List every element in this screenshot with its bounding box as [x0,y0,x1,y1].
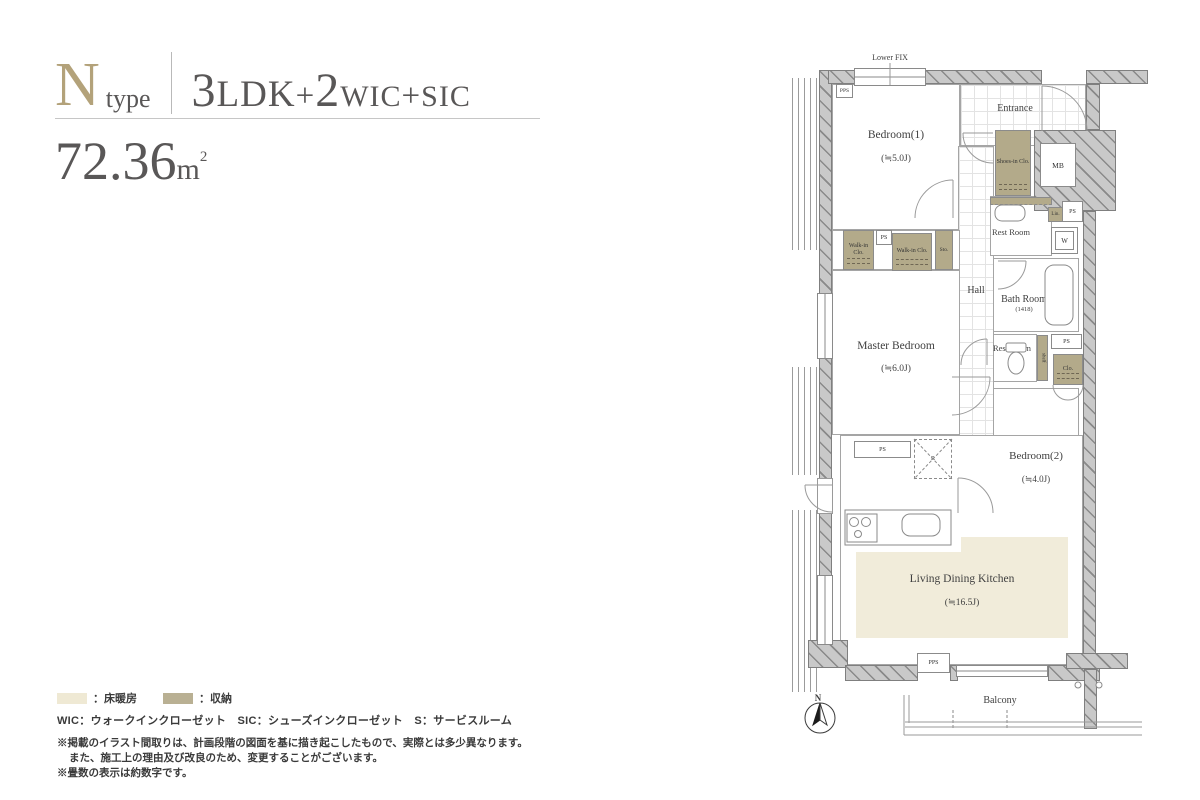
storage-label: ：収納 [199,690,232,706]
balcony-drain-1 [1075,682,1081,688]
shoes-in-closet: Shoes-in Clo. [995,130,1031,196]
window-lower-fix [854,68,926,86]
compass-needle-dark [813,703,820,725]
bedroom2-label: Bedroom(2) [993,450,1079,462]
ps-wic-label: PS [881,235,888,241]
pps-box-bottom: PPS [917,653,950,673]
hall-label: Hall [958,285,994,296]
wall-balcony-stub [1066,653,1128,669]
shelf-label: shelf [1040,353,1046,363]
ldk-size: (≒16.5J) [856,597,1068,608]
storage-box: Sto. [935,230,953,270]
header-divider [171,52,172,114]
ps-box-entrance: PS [1062,201,1083,222]
bathroom-label: Bath Room [993,294,1055,305]
area-unit-sup: 2 [200,149,208,165]
ps-kitchen-label: PS [879,447,886,453]
wall-top-c [1086,70,1148,84]
floor-heating-swatch [57,693,87,704]
wall-balcony-divider [1084,669,1097,729]
layout-ldk: LDK [217,74,296,115]
plan-type-header: N type 3LDK+2WIC+SIC [55,52,471,114]
washroom-label: Rest Room [988,227,1034,238]
shelf-strip: shelf [1037,335,1048,381]
walk-in-closet-1: Walk-in Clo. [843,230,874,270]
master-bedroom-size: (≒6.0J) [832,363,960,374]
exterior-louver-2 [792,367,822,475]
bedroom1-size: (≒5.0J) [832,153,960,164]
master-bedroom-label: Master Bedroom [832,340,960,352]
footnotes: ※掲載のイラスト間取りは、計画段階の図面を基に描き起こしたもので、実際とは多少異… [57,736,528,781]
shoes-in-closet-label: Shoes-in Clo. [997,159,1030,166]
walk-in-closet-1-label: Walk-in Clo. [844,243,873,257]
door-opening-west [817,478,833,514]
area-value: 72.36 [55,131,177,191]
bedroom1-label: Bedroom(1) [832,129,960,141]
ps-box-kitchen: PS [854,441,911,458]
exterior-louver-1 [792,78,818,250]
footnote-3: ※畳数の表示は約数字です。 [57,766,528,781]
ps-box-wic: PS [876,230,892,245]
storage-box-label: Sto. [940,247,949,254]
floor-heating-area-main [856,552,1068,638]
floor-area: 72.36m2 [55,130,207,192]
footnote-2: また、施工上の理由及び改良のため、変更することがございます。 [57,751,528,766]
window-master-west [817,293,833,359]
storage-swatch [163,693,193,704]
room-hall [958,146,994,478]
linen-box: Lin. [1048,207,1063,222]
bathroom-size: (1418) [993,306,1055,313]
floor-heating-label: ：床暖房 [93,690,137,706]
walk-in-closet-2: Walk-in Clo. [892,233,932,271]
washer-box: W [1051,227,1078,254]
layout-num-2: 2 [315,64,340,117]
entrance-label: Entrance [975,103,1055,114]
layout-wic: WIC [340,80,401,113]
layout-plus-1: + [296,78,316,114]
meter-box-label: MB [1052,161,1064,170]
north-label: N [808,693,828,703]
wall-bottom-a [845,665,918,681]
washstand-counter [990,197,1052,205]
layout-num-1: 3 [192,64,217,117]
balcony-rail-left [904,695,909,735]
footnote-1: ※掲載のイラスト間取りは、計画段階の図面を基に描き起こしたもので、実際とは多少異… [57,736,528,751]
layout-plus-2: + [402,78,422,114]
balcony-rails [904,722,1142,735]
floor-plan: Shoes-in Clo. Walk-in Clo. Walk-in Clo. … [790,55,1150,755]
abbreviation-note: WIC：ウォークインクローゼット SIC：シューズインクローゼット S：サービス… [57,712,512,728]
washer-inner: W [1055,231,1074,250]
type-word: type [106,85,151,114]
bedroom2-size: (≒4.0J) [993,474,1079,485]
compass-needle-light [820,703,827,725]
room-master-bedroom [832,270,960,435]
layout-sic: SIC [421,80,471,113]
floor-heating-area-upper [961,537,1068,553]
washer-label: W [1061,237,1068,245]
header-rule [55,118,540,119]
restroom-label: Rest Room [991,343,1033,354]
pps-bottom-label: PPS [928,660,938,666]
pps-top-label: PPS [840,88,849,94]
wall-right-upper [1086,84,1100,130]
ps-bath-label: PS [1063,339,1070,345]
type-letter: N [55,58,100,114]
closet-bedroom2: Clo. [1053,354,1083,385]
ldk-label: Living Dining Kitchen [856,573,1068,585]
balcony-label: Balcony [950,695,1050,706]
legend: ：床暖房 ：収納 [57,690,232,706]
walk-in-closet-2-label: Walk-in Clo. [897,248,928,255]
layout-designation: 3LDK+2WIC+SIC [192,68,471,114]
compass [805,703,835,733]
compass-ring [805,703,835,733]
refrigerator-label: R [931,456,935,462]
window-ldk-west [817,575,833,645]
ps-entrance-label: PS [1069,209,1076,215]
closet-bedroom2-label: Clo. [1063,366,1073,373]
balcony-partition-marks [953,710,1007,730]
refrigerator-space: R [914,439,952,479]
wall-top-b [924,70,1042,84]
linen-box-label: Lin. [1051,212,1059,218]
area-unit: m [177,153,200,186]
room-restroom [993,334,1037,382]
lower-fix-label: Lower FIX [850,53,930,62]
window-balcony [956,665,1048,677]
ps-box-bath: PS [1051,334,1082,349]
wall-right [1083,211,1096,655]
meter-box: MB [1040,143,1076,187]
pps-box-top: PPS [836,84,853,98]
